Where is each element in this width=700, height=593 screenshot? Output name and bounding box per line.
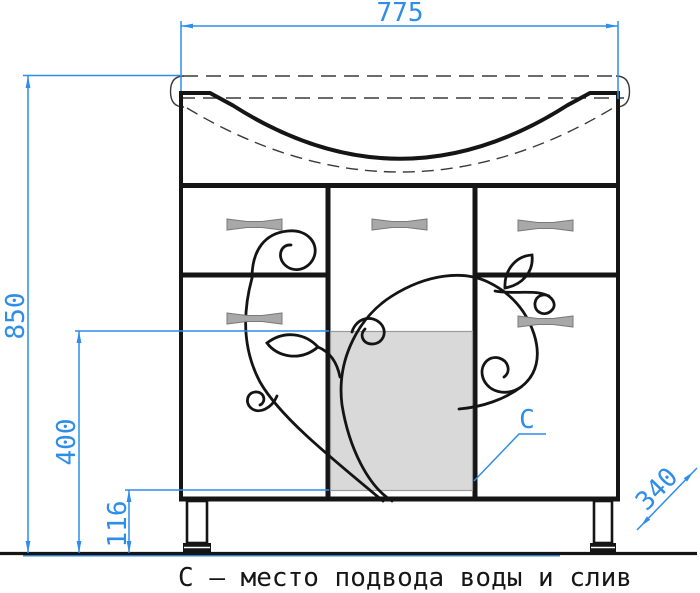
left-door-handle <box>227 313 282 324</box>
dim-label-340: 340 <box>630 462 684 517</box>
dim-label-116: 116 <box>103 501 133 548</box>
middle-door-handle <box>372 219 427 230</box>
sink-front-rim <box>181 93 618 159</box>
supply-marker-group: С <box>474 405 546 481</box>
ornament-leaf-left <box>267 335 318 356</box>
arrow-up-icon <box>127 490 132 502</box>
arrow-down-icon <box>26 541 31 553</box>
dimension-depth: 340 <box>630 462 697 530</box>
left-leg <box>187 501 207 543</box>
arrow-left-icon <box>181 24 193 29</box>
ornament-leaf-right <box>505 255 532 288</box>
dim-label-775: 775 <box>377 0 424 28</box>
arrow-right-icon <box>606 24 618 29</box>
supply-marker-label: С <box>519 405 535 435</box>
arrow-down-icon <box>77 541 82 553</box>
drawing-caption: С – место подвода воды и слив <box>178 563 632 593</box>
marker-leader-line <box>474 434 546 481</box>
right-drawer-handle <box>518 220 573 231</box>
water-supply-zone <box>331 332 473 491</box>
left-drawer-handle <box>227 219 282 230</box>
dim-label-850: 850 <box>1 293 31 340</box>
dimension-width: 775 <box>181 0 618 99</box>
ornament-spiral-top-left <box>252 231 315 278</box>
right-door-handle <box>518 316 573 327</box>
ornament-curl-stem <box>247 392 277 411</box>
arrow-up-icon <box>26 76 31 88</box>
drawing-canvas: 775 850 400 116 340 С С – место подвода … <box>0 0 700 593</box>
arrow-up-icon <box>77 331 82 343</box>
ornament-curl-right <box>495 291 554 314</box>
dimension-height: 850 <box>1 76 181 554</box>
right-leg <box>594 501 612 543</box>
dim-label-400: 400 <box>52 419 82 466</box>
legs-group <box>183 501 616 554</box>
vanity-technical-drawing: 775 850 400 116 340 С С – место подвода … <box>0 0 700 593</box>
